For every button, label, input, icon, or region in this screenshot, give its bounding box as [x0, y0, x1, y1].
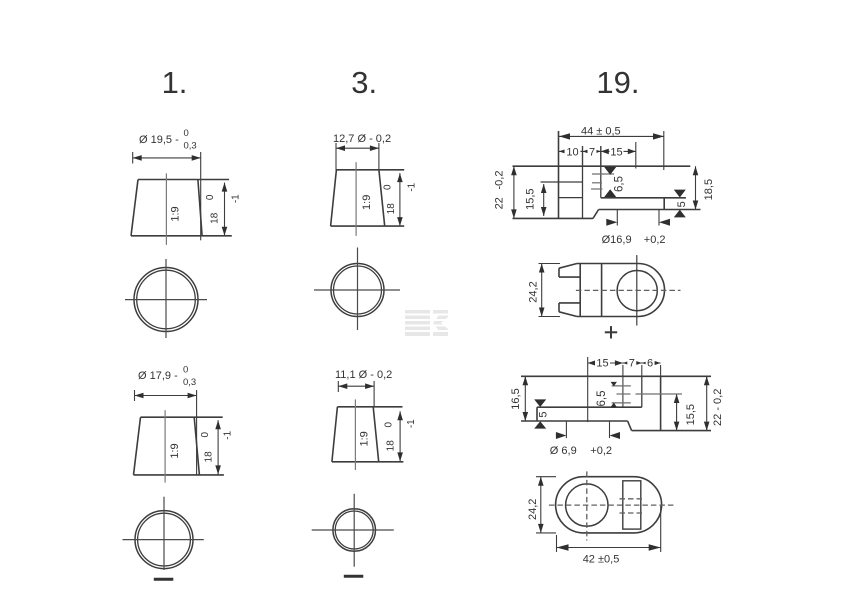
- svg-text:5: 5: [538, 412, 550, 418]
- svg-text:+0,2: +0,2: [644, 234, 666, 246]
- svg-text:24,2: 24,2: [527, 281, 539, 302]
- svg-text:18: 18: [385, 440, 396, 452]
- svg-text:0,3: 0,3: [184, 141, 197, 152]
- svg-text:Ø 17,9 -: Ø 17,9 -: [138, 370, 178, 382]
- svg-text:19.: 19.: [596, 65, 639, 100]
- svg-text:0: 0: [184, 128, 189, 139]
- svg-text:42 ±0,5: 42 ±0,5: [583, 554, 620, 566]
- svg-text:0: 0: [383, 184, 394, 190]
- svg-text:10: 10: [566, 147, 578, 159]
- svg-text:24,2: 24,2: [527, 499, 539, 520]
- svg-text:Ø 19,5 -: Ø 19,5 -: [139, 134, 179, 146]
- svg-text:Ø16,9: Ø16,9: [602, 234, 632, 246]
- svg-text:5: 5: [676, 201, 688, 207]
- svg-text:+0,2: +0,2: [590, 445, 612, 457]
- svg-text:18: 18: [386, 203, 397, 215]
- svg-text:6: 6: [647, 358, 653, 370]
- svg-text:-0,2: -0,2: [494, 171, 506, 190]
- svg-text:1:9: 1:9: [170, 206, 182, 221]
- svg-text:7: 7: [629, 358, 635, 370]
- svg-text:0: 0: [200, 431, 211, 437]
- svg-text:0: 0: [205, 194, 216, 200]
- svg-text:0,3: 0,3: [183, 377, 196, 388]
- svg-text:0: 0: [183, 365, 188, 376]
- svg-text:18: 18: [210, 212, 221, 224]
- svg-text:1:9: 1:9: [361, 195, 373, 210]
- svg-text:7: 7: [589, 147, 595, 159]
- svg-text:1.: 1.: [162, 65, 188, 100]
- svg-text:15: 15: [610, 147, 622, 159]
- svg-text:15,5: 15,5: [525, 188, 537, 209]
- svg-text:12,7 Ø - 0,2: 12,7 Ø - 0,2: [333, 133, 391, 145]
- svg-text:15,5: 15,5: [685, 404, 697, 425]
- svg-text:22 - 0,2: 22 - 0,2: [712, 389, 724, 426]
- svg-text:0: 0: [384, 421, 395, 427]
- svg-text:11,1 Ø - 0,2: 11,1 Ø - 0,2: [335, 369, 392, 381]
- svg-text:3.: 3.: [351, 65, 377, 100]
- svg-text:15: 15: [596, 358, 608, 370]
- svg-text:-1: -1: [407, 182, 418, 191]
- svg-text:22: 22: [494, 197, 506, 209]
- svg-text:18: 18: [204, 451, 215, 463]
- svg-text:-1: -1: [230, 194, 241, 203]
- svg-text:-1: -1: [222, 430, 233, 439]
- svg-text:44 ± 0,5: 44 ± 0,5: [581, 126, 621, 138]
- svg-text:16,5: 16,5: [510, 388, 522, 409]
- svg-text:6,5: 6,5: [596, 391, 608, 407]
- svg-text:Ø 6,9: Ø 6,9: [550, 445, 577, 457]
- svg-text:18,5: 18,5: [703, 179, 715, 200]
- svg-text:6,5: 6,5: [614, 176, 626, 192]
- svg-text:1:9: 1:9: [359, 431, 371, 446]
- svg-text:-1: -1: [406, 419, 417, 428]
- svg-text:1:9: 1:9: [169, 443, 181, 458]
